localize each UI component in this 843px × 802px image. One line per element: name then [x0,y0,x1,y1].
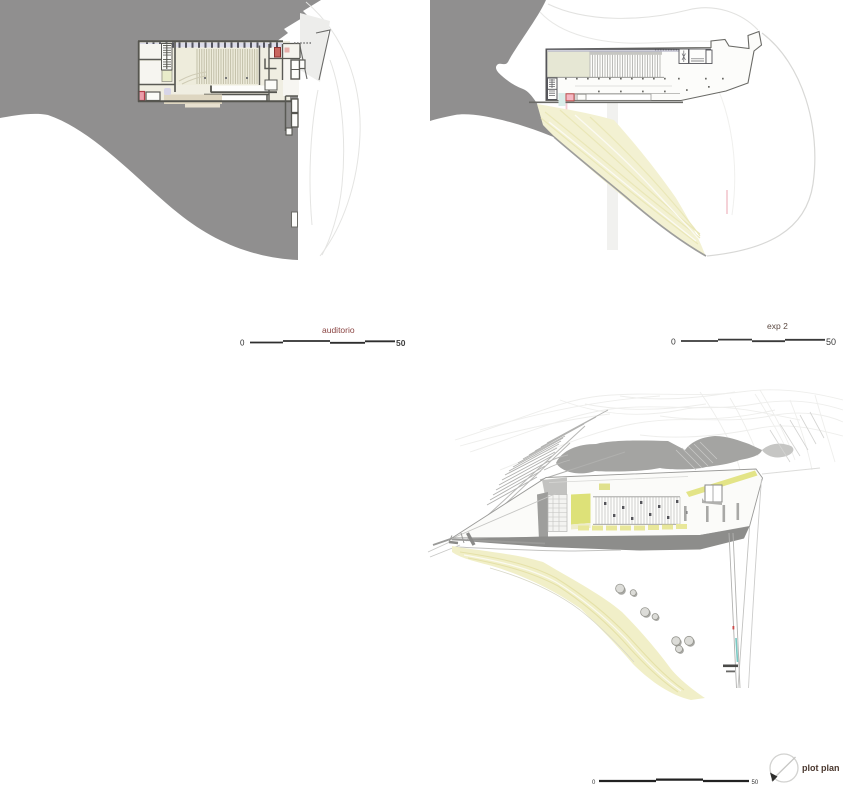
svg-text:exp 2: exp 2 [767,321,788,331]
svg-text:50: 50 [396,338,406,348]
svg-text:0: 0 [240,339,245,348]
svg-text:plot plan: plot plan [802,763,840,773]
svg-text:0: 0 [592,780,596,786]
svg-text:50: 50 [752,780,759,786]
svg-text:auditorio: auditorio [322,325,355,335]
svg-text:50: 50 [826,337,836,347]
svg-text:0: 0 [671,337,676,347]
